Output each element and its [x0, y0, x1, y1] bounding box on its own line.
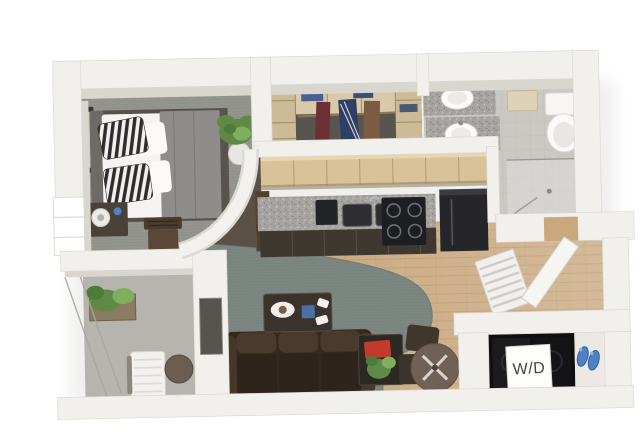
washer-dryer-label: W/D [512, 360, 546, 379]
wall-cabinet [507, 90, 537, 111]
round-table [410, 343, 459, 392]
sofa-back-cushion [320, 330, 360, 352]
apartment-plan: W/D [50, 49, 637, 419]
nightstand [85, 202, 128, 237]
closet-bathroom-wall [416, 54, 429, 96]
red-tray [364, 340, 391, 359]
side-table [358, 334, 403, 385]
entry-door-opening [544, 217, 578, 242]
west-window [53, 197, 86, 256]
desk-chair [144, 217, 183, 254]
folded-clothes-3 [399, 104, 417, 112]
sofa-seat-cushion [237, 354, 278, 395]
sofa-seat-cushion [279, 353, 320, 394]
hanging-garment-brown [363, 101, 380, 141]
refrigerator [439, 188, 488, 251]
laundry-north-wall [454, 310, 630, 336]
sofa-back-cushion [278, 331, 318, 353]
sofa-back-cushion [236, 332, 276, 354]
coffee-table [263, 293, 332, 332]
sofa-seat-cushion [321, 352, 362, 393]
balcony-wall-window [199, 298, 222, 354]
blue-book [302, 305, 315, 318]
bedroom-closet-wall [250, 57, 272, 153]
stove [381, 197, 426, 246]
fridge-handle [451, 199, 452, 245]
floorplan-svg: W/D [0, 0, 640, 432]
hanging-garment-maroon [315, 102, 330, 142]
lounge-chair [127, 351, 166, 398]
floorplan-image: W/D [0, 0, 640, 432]
sofa [220, 329, 375, 398]
west-wall-upper [52, 61, 83, 198]
lounge-chair-arm [127, 356, 133, 394]
pillow-striped-2 [103, 163, 154, 205]
east-wall-bathroom [572, 50, 601, 217]
balcony-table [165, 355, 194, 384]
countertop-appliance [315, 200, 338, 225]
wd-sign: W/D [506, 344, 552, 390]
kitchen-bathroom-wall [486, 146, 500, 222]
kitchen [254, 148, 494, 257]
laundry-alcove: W/D [488, 332, 609, 394]
